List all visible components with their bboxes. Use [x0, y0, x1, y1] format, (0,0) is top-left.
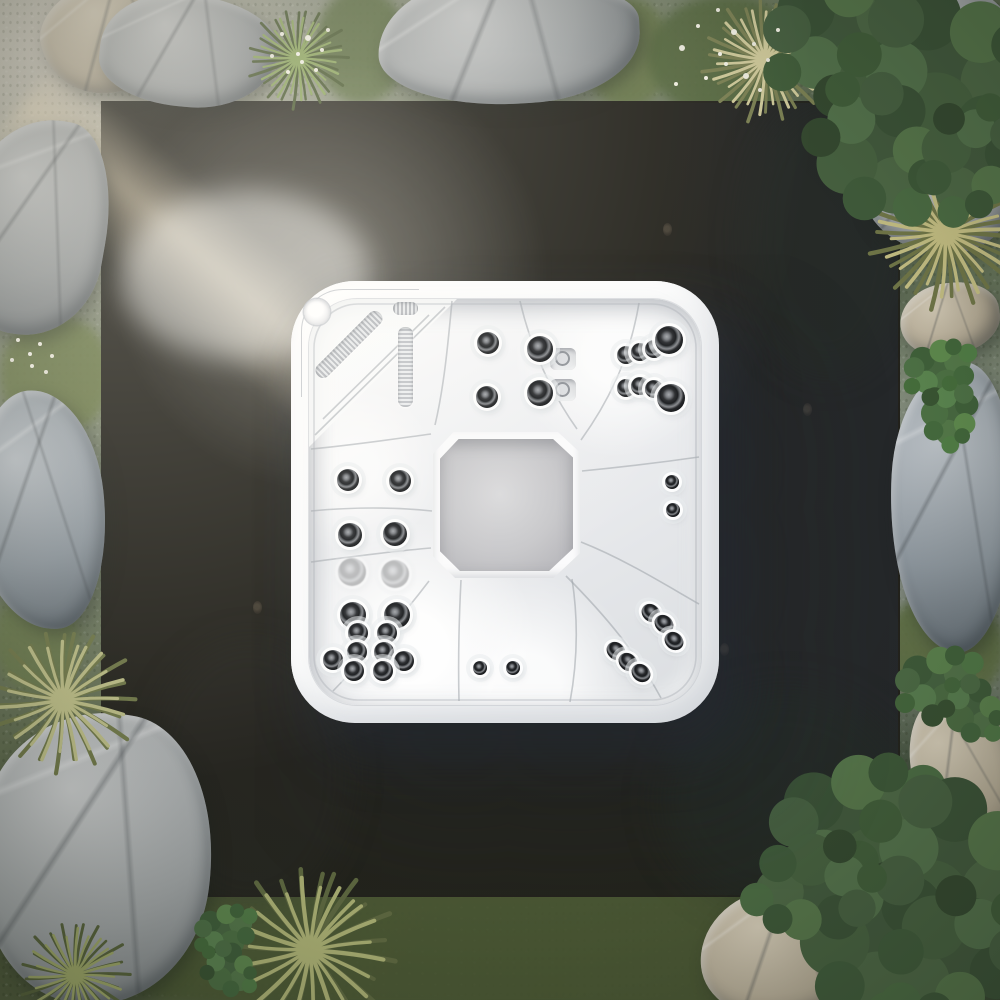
vignette [0, 0, 1000, 1000]
aerial-photo-scene [0, 0, 1000, 1000]
